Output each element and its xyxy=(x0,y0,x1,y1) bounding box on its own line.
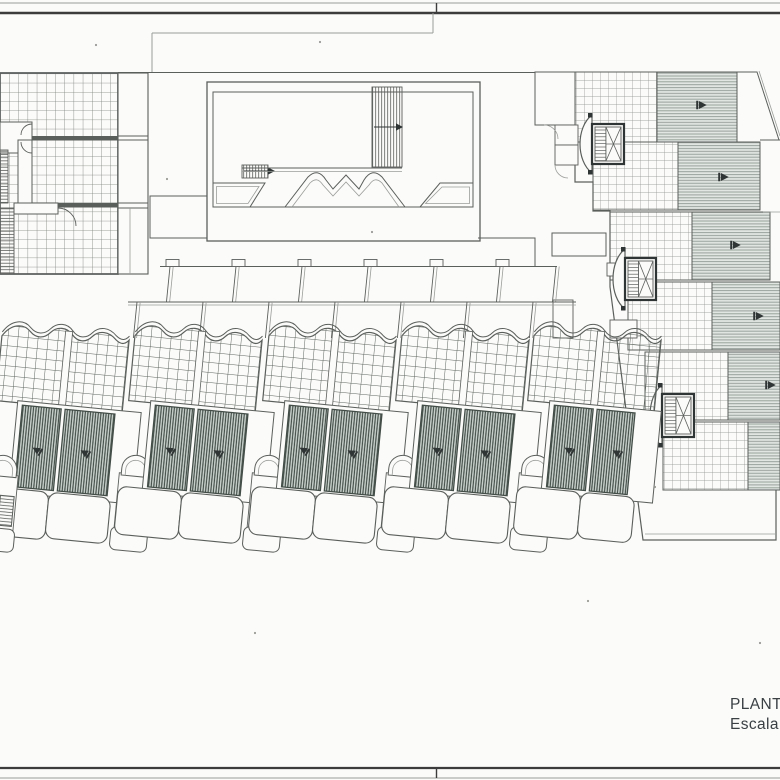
terrace-divider xyxy=(397,302,401,338)
terrace-divider xyxy=(232,267,236,303)
scan-speck xyxy=(166,178,168,180)
scan-speck xyxy=(759,642,761,644)
striped-terrace-roof xyxy=(712,282,780,350)
ground-room xyxy=(178,492,244,544)
scanned-plan-page: PLANT Escala xyxy=(0,0,780,780)
courtyard xyxy=(207,82,480,241)
roof-tab xyxy=(232,260,245,267)
ground-room xyxy=(513,486,581,540)
upper-terrace-strips xyxy=(128,260,576,339)
site-boundary-lines xyxy=(118,13,535,272)
ground-room xyxy=(45,492,111,544)
roof-tab xyxy=(298,260,311,267)
dark-roof-panel xyxy=(15,405,62,490)
terrace-divider xyxy=(265,302,269,338)
striped-terrace-roof xyxy=(748,422,780,490)
ground-room xyxy=(114,486,182,540)
terrace-divider xyxy=(298,267,302,303)
top-left-building xyxy=(0,73,148,274)
scan-speck xyxy=(254,632,256,634)
plan-title-text: PLANT xyxy=(730,696,780,713)
terrace-divider xyxy=(166,267,170,303)
stair-treads xyxy=(0,494,14,527)
ground-room xyxy=(445,492,511,544)
ground-room xyxy=(381,486,449,540)
scan-speck xyxy=(95,44,97,46)
ground-room xyxy=(248,486,316,540)
dark-roof-panel xyxy=(415,405,462,490)
dark-roof-panel xyxy=(547,405,594,490)
dark-roof-panel xyxy=(589,409,635,494)
scan-speck xyxy=(587,600,589,602)
scan-speck xyxy=(654,486,656,488)
terrace-divider xyxy=(496,267,500,303)
canopy-post xyxy=(621,306,626,311)
canopy-post xyxy=(658,383,663,388)
ground-room xyxy=(312,492,378,544)
door-swing-arc xyxy=(555,165,568,178)
roof-tab xyxy=(496,260,509,267)
roof-tab xyxy=(430,260,443,267)
ground-room xyxy=(577,492,635,543)
plan-scale-text: Escala xyxy=(730,716,779,733)
canopy-post xyxy=(658,443,663,448)
canopy-post xyxy=(588,170,593,175)
title-annotation: PLANT Escala xyxy=(730,696,780,733)
scan-speck xyxy=(319,41,321,43)
canopy-post xyxy=(621,247,626,252)
dark-roof-panel xyxy=(148,405,195,490)
stair-treads xyxy=(0,150,8,203)
stair-treads xyxy=(0,208,14,274)
roof-tab xyxy=(166,260,179,267)
terrace-divider xyxy=(430,267,434,303)
wall-band xyxy=(30,136,118,141)
terrace-divider xyxy=(364,267,368,303)
terrace-divider xyxy=(133,302,137,338)
floor-plan-canvas: PLANT Escala xyxy=(0,0,780,780)
scan-speck xyxy=(371,231,373,233)
canopy-post xyxy=(588,113,593,118)
terrace-divider xyxy=(529,302,533,338)
terrace-divider xyxy=(552,267,556,303)
dark-roof-panel xyxy=(282,405,329,490)
roof-tab xyxy=(364,260,377,267)
